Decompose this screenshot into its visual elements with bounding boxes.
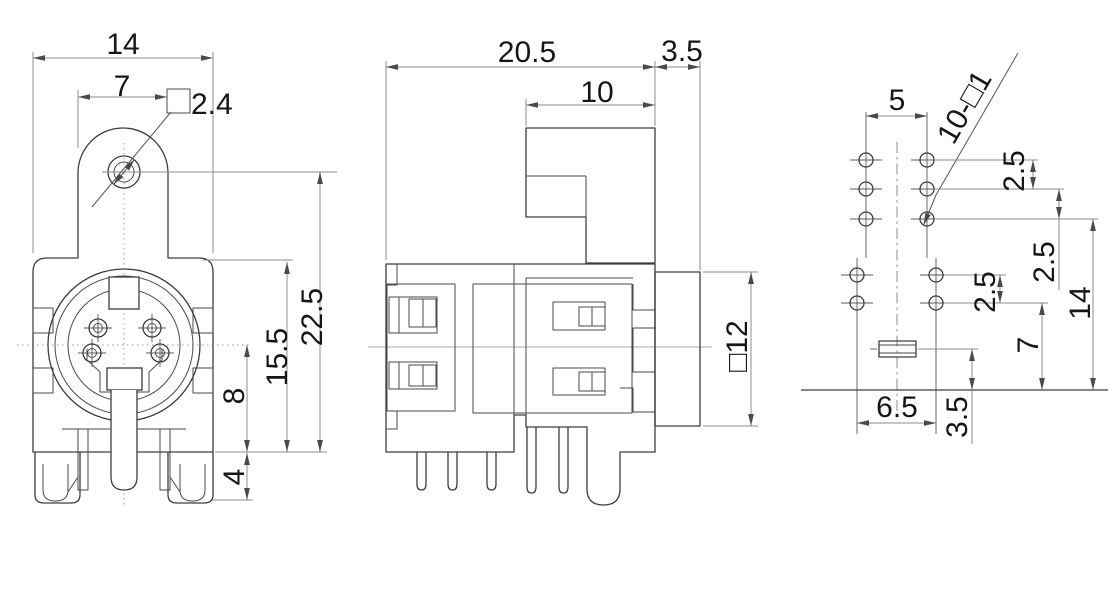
dim-front-tab-width: 7 bbox=[114, 70, 131, 103]
dim-fp-pin-pitch: 5 bbox=[889, 84, 906, 117]
dim-front-mount-hole: 2.4 bbox=[191, 88, 233, 121]
dim-fp-row-pitch-c: 2.5 bbox=[969, 271, 1002, 313]
dim-side-tab-depth: 10 bbox=[580, 76, 613, 109]
side-view: 20.5 3.5 10 □12 bbox=[368, 35, 758, 505]
dim-fp-row5-to-base: 7 bbox=[1012, 337, 1045, 354]
dim-fp-bottom-pitch: 6.5 bbox=[876, 391, 918, 424]
dim-front-hole-to-base: 22.5 bbox=[296, 288, 329, 346]
dim-fp-row-pitch-a: 2.5 bbox=[998, 150, 1031, 192]
dim-front-center-to-base: 8 bbox=[218, 388, 251, 405]
dim-fp-slot-to-base: 3.5 bbox=[941, 396, 974, 438]
dim-side-barrel-depth: 3.5 bbox=[661, 35, 703, 68]
dim-front-leg-height: 4 bbox=[218, 469, 251, 486]
front-pins bbox=[78, 314, 174, 367]
front-view: 14 7 2.4 8 4 15.5 22.5 bbox=[17, 28, 337, 507]
side-pins bbox=[417, 427, 568, 493]
technical-drawing-page: 14 7 2.4 8 4 15.5 22.5 bbox=[0, 0, 1120, 608]
connector-dimension-drawing: 14 7 2.4 8 4 15.5 22.5 bbox=[0, 0, 1120, 608]
footprint-view: 5 10-□1 2.5 2.5 2.5 14 7 3.5 6.5 bbox=[801, 53, 1108, 444]
side-barrel bbox=[655, 272, 700, 426]
dim-front-overall-width: 14 bbox=[106, 28, 139, 61]
dim-front-body-height: 15.5 bbox=[261, 328, 294, 386]
key-notch bbox=[109, 277, 139, 309]
dim-fp-row-pitch-b: 2.5 bbox=[1028, 241, 1061, 283]
dim-side-overall-depth: 20.5 bbox=[498, 36, 556, 69]
bottom-slot bbox=[107, 368, 142, 390]
side-tab-outline bbox=[526, 128, 655, 263]
square-symbol-2-4 bbox=[167, 89, 190, 113]
front-dimensions bbox=[33, 52, 337, 500]
dim-fp-row3-to-base: 14 bbox=[1064, 286, 1097, 319]
footprint-slot bbox=[870, 341, 916, 357]
side-right-terminal-box bbox=[473, 284, 632, 413]
side-dimensions bbox=[386, 61, 758, 426]
dim-side-barrel-square: □12 bbox=[721, 320, 754, 372]
dim-fp-hole-callout: 10-□1 bbox=[931, 65, 999, 149]
